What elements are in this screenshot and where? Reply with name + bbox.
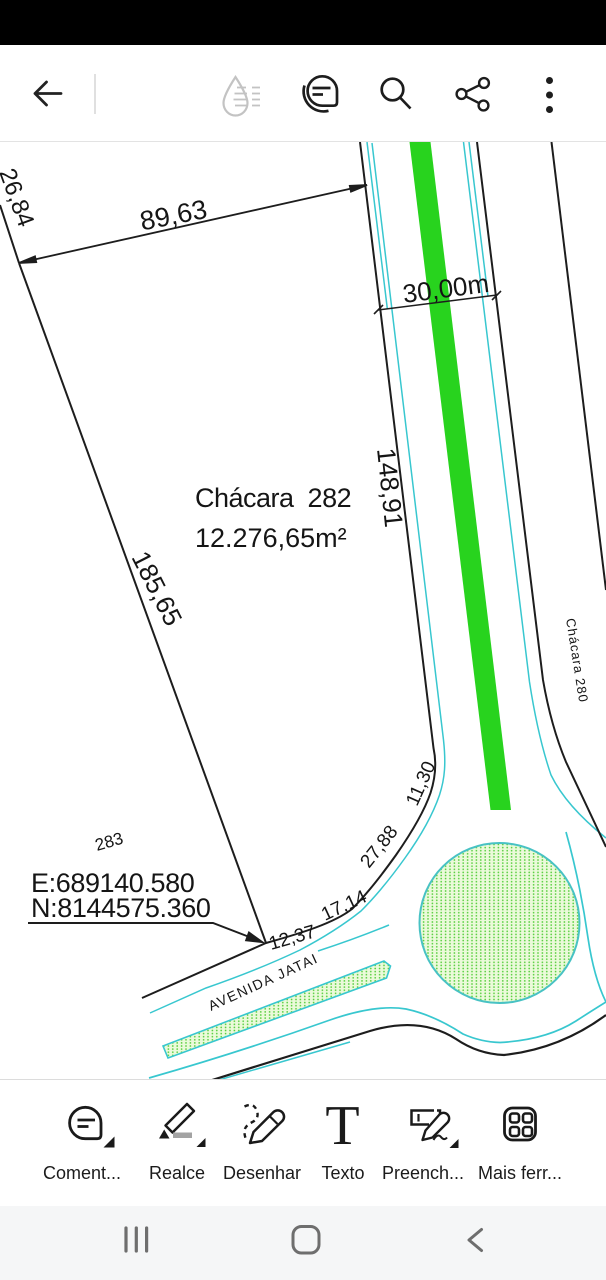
svg-text:185,65: 185,65 [126,546,189,630]
svg-text:12.276,65m²: 12.276,65m² [195,523,347,553]
svg-text:Realce: Realce [149,1163,205,1183]
svg-text:148,91: 148,91 [371,446,409,528]
svg-text:Preench...: Preench... [382,1163,464,1183]
svg-text:Coment...: Coment... [43,1163,121,1183]
svg-text:Chácara 282: Chácara 282 [195,483,351,513]
svg-text:283: 283 [93,829,126,855]
svg-text:Chácara 280: Chácara 280 [563,617,591,704]
svg-text:17,14: 17,14 [318,886,370,925]
svg-text:11,30: 11,30 [402,758,440,809]
svg-text:89,63: 89,63 [137,194,209,236]
svg-text:30,00m: 30,00m [401,268,491,309]
svg-text:T: T [325,1095,359,1157]
svg-text:27,88: 27,88 [356,822,402,872]
svg-text:Desenhar: Desenhar [223,1163,301,1183]
svg-text:12,37: 12,37 [267,922,318,955]
svg-text:Texto: Texto [321,1163,364,1183]
svg-text:N:8144575.360: N:8144575.360 [31,893,210,923]
svg-text:Mais ferr...: Mais ferr... [478,1163,562,1183]
